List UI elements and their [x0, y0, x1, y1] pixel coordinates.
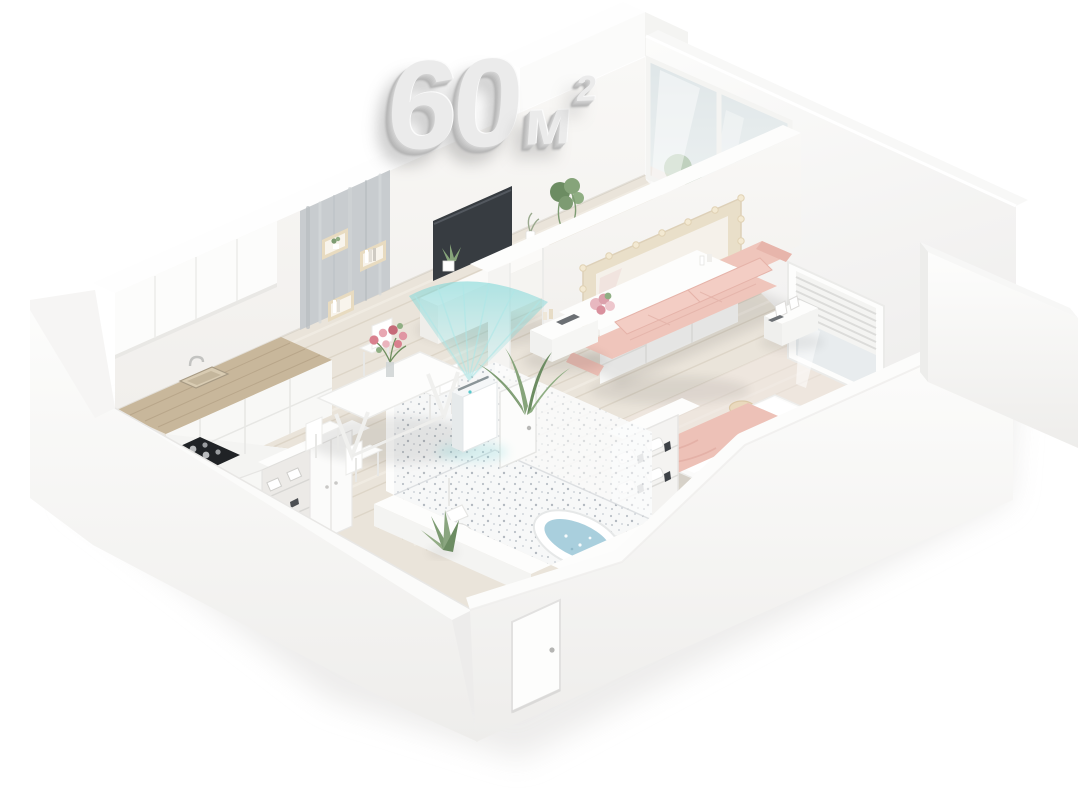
floorplan-render: 60м2: [0, 0, 1080, 800]
area-superscript: 2: [575, 67, 598, 109]
area-unit: м: [522, 85, 575, 159]
area-title: 60м2: [383, 36, 598, 169]
area-value: 60: [383, 31, 523, 176]
